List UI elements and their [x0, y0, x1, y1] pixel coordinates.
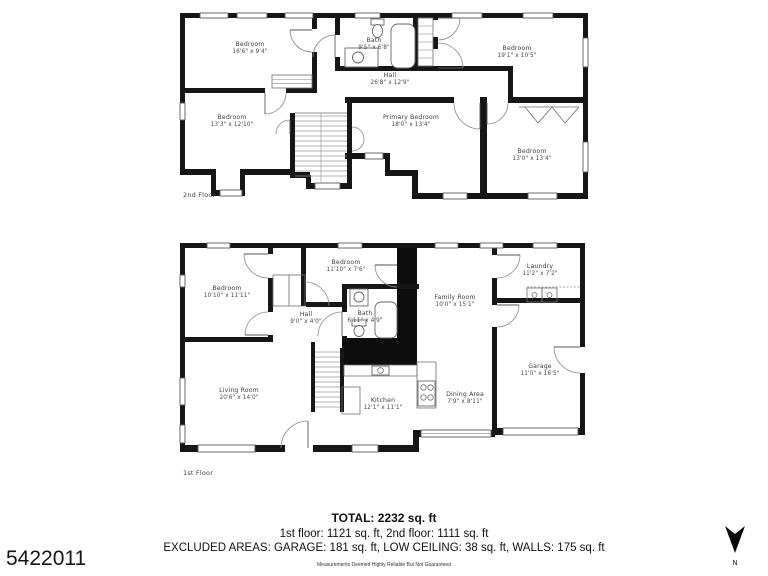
closets: [273, 275, 305, 306]
room-dims: 13'0" x 13'4": [512, 156, 551, 164]
floor-plan-1st: Bedroom 10'10" x 11'11" Bedroom 11'10" x…: [178, 240, 590, 458]
room-dims: 12'1" x 11'1": [363, 405, 402, 413]
room-dims: 7'9" x 8'11": [446, 399, 484, 407]
room-dims: 11'0" x 16'5": [520, 371, 559, 379]
room-name: Bedroom: [232, 41, 267, 49]
room-label-bedroom-bl: Bedroom 13'3" x 12'10": [211, 114, 254, 130]
room-label-laundry: Laundry 11'2" x 7'2": [522, 263, 557, 279]
room-dims: 13'3" x 12'10": [211, 122, 254, 130]
room-dims: 16'6" x 9'4": [232, 49, 267, 57]
room-label-bedroom-tr: Bedroom 19'1" x 10'5": [497, 45, 536, 61]
room-dims: 10'0" x 15'1": [434, 302, 475, 310]
room-label-bedroom-1tm: Bedroom 11'10" x 7'6": [326, 259, 365, 275]
room-name: Hall: [370, 72, 409, 80]
room-name: Hall: [290, 311, 321, 319]
sink: [353, 52, 364, 63]
north-arrow-icon: [722, 526, 748, 554]
room-name: Bedroom: [211, 114, 254, 122]
toilet: [373, 25, 383, 38]
room-name: Laundry: [522, 263, 557, 271]
floor-plan-2nd: Bedroom 16'6" x 9'4" Bath 9'5" x 6'8" Be…: [178, 12, 590, 204]
room-name: Primary Bedroom: [383, 114, 439, 122]
peninsula-counter: [342, 387, 360, 414]
room-label-bedroom-1tl: Bedroom 10'10" x 11'11": [204, 285, 251, 301]
room-name: Kitchen: [363, 397, 402, 405]
floor-tag-1st: 1st Floor: [183, 469, 213, 477]
room-label-bedroom-br: Bedroom 13'0" x 13'4": [512, 148, 551, 164]
room-label-hall-2: Hall 26'8" x 12'9": [370, 72, 409, 88]
room-dims: 20'6" x 14'0": [219, 395, 259, 403]
bathtub: [391, 24, 415, 68]
room-name: Dining Area: [446, 391, 484, 399]
garage-door: [503, 428, 578, 435]
summary-block: TOTAL: 2232 sq. ft 1st floor: 1121 sq. f…: [0, 511, 768, 568]
compass-north-label: N: [722, 559, 748, 567]
room-label-bath-1: Bath 6'11" x 4'9": [347, 310, 382, 326]
room-name: Family Room: [434, 294, 475, 302]
room-label-garage: Garage 11'0" x 16'5": [520, 363, 559, 379]
room-dims: 9'0" x 4'0": [290, 319, 321, 327]
toilet: [354, 326, 364, 337]
stairs: [315, 352, 340, 407]
per-floor-areas: 1st floor: 1121 sq. ft, 2nd floor: 1111 …: [0, 528, 768, 540]
disclaimer: Measurements Deemed Highly Reliable But …: [0, 562, 768, 568]
room-label-dining-area: Dining Area 7'9" x 8'11": [446, 391, 484, 407]
stove: [418, 381, 435, 406]
room-name: Bedroom: [512, 148, 551, 156]
room-dims: 26'8" x 12'9": [370, 80, 409, 88]
room-dims: 6'11" x 4'9": [347, 318, 382, 326]
room-label-primary-bedroom: Primary Bedroom 18'0" x 13'4": [383, 114, 439, 130]
room-name: Bedroom: [497, 45, 536, 53]
total-area: TOTAL: 2232 sq. ft: [0, 511, 768, 525]
room-name: Living Room: [219, 387, 259, 395]
compass: N: [722, 526, 748, 567]
room-label-family-room: Family Room 10'0" x 15'1": [434, 294, 475, 310]
room-name: Bedroom: [326, 259, 365, 267]
room-dims: 9'5" x 6'8": [358, 45, 389, 53]
sink: [354, 292, 364, 302]
room-dims: 11'2" x 7'2": [522, 271, 557, 279]
stairs: [295, 113, 347, 182]
room-label-kitchen: Kitchen 12'1" x 11'1": [363, 397, 402, 413]
room-name: Bath: [358, 37, 389, 45]
room-label-bedroom-tl: Bedroom 16'6" x 9'4": [232, 41, 267, 57]
room-name: Garage: [520, 363, 559, 371]
excluded-areas: EXCLUDED AREAS: GARAGE: 181 sq. ft, LOW …: [0, 542, 768, 554]
room-dims: 19'1" x 10'5": [497, 53, 536, 61]
room-label-bath-2: Bath 9'5" x 6'8": [358, 37, 389, 53]
room-name: Bedroom: [204, 285, 251, 293]
room-label-hall-1: Hall 9'0" x 4'0": [290, 311, 321, 327]
listing-id: 5422011: [6, 547, 86, 571]
room-dims: 11'10" x 7'6": [326, 267, 365, 275]
room-dims: 10'10" x 11'11": [204, 293, 251, 301]
room-dims: 18'0" x 13'4": [383, 122, 439, 130]
floor-tag-2nd: 2nd Floor: [183, 191, 215, 199]
room-name: Bath: [347, 310, 382, 318]
room-label-living-room: Living Room 20'6" x 14'0": [219, 387, 259, 403]
